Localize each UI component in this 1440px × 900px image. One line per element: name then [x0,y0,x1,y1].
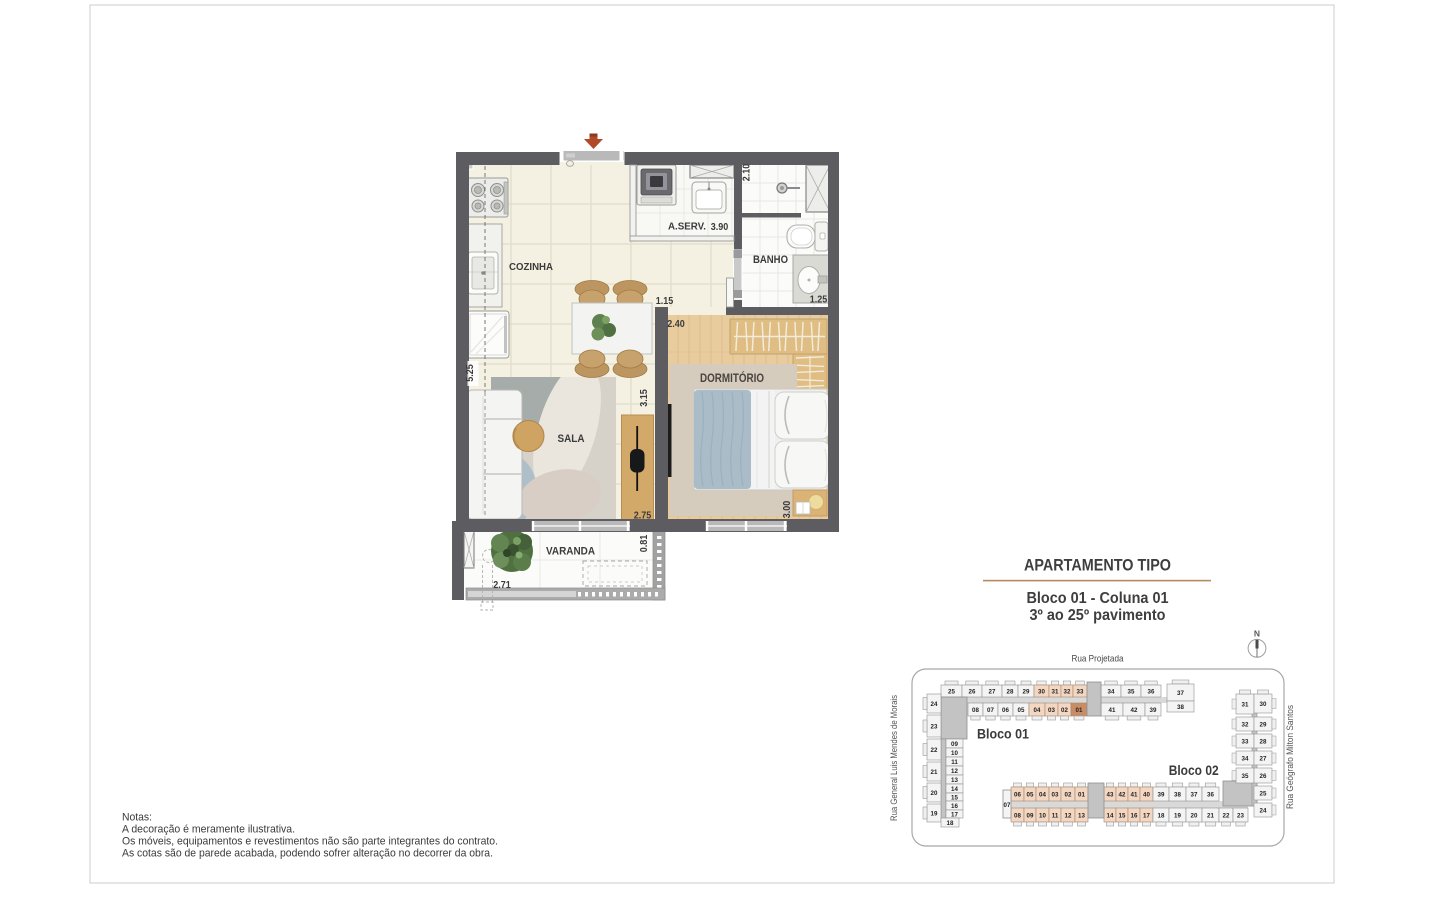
svg-text:3.90: 3.90 [711,222,729,233]
svg-text:2.10: 2.10 [742,163,753,181]
svg-text:06: 06 [1002,707,1009,714]
svg-text:11: 11 [951,759,958,766]
svg-text:42: 42 [1119,791,1126,798]
svg-text:03: 03 [1052,791,1059,798]
svg-text:19: 19 [1174,812,1181,819]
svg-text:20: 20 [931,790,938,797]
svg-text:12: 12 [1065,812,1072,819]
svg-text:25: 25 [1260,790,1267,797]
svg-text:APARTAMENTO TIPO: APARTAMENTO TIPO [1024,556,1171,575]
svg-text:26: 26 [969,688,976,695]
svg-text:24: 24 [931,701,938,708]
svg-text:28: 28 [1260,738,1267,745]
svg-text:2.75: 2.75 [634,511,652,522]
svg-text:Rua General Luis Mendes de Mor: Rua General Luis Mendes de Morais [889,695,900,821]
svg-text:39: 39 [1158,791,1165,798]
svg-text:37: 37 [1191,791,1198,798]
svg-text:29: 29 [1260,721,1267,728]
svg-text:43: 43 [1107,791,1114,798]
svg-text:2.71: 2.71 [493,580,511,591]
svg-text:04: 04 [1039,791,1046,798]
svg-text:3º ao 25º pavimento: 3º ao 25º pavimento [1030,607,1166,624]
svg-text:05: 05 [1018,707,1025,714]
svg-text:N: N [1254,629,1260,639]
svg-text:41: 41 [1131,791,1138,798]
svg-text:Bloco 01: Bloco 01 [977,727,1029,742]
svg-text:29: 29 [1023,688,1030,695]
svg-text:28: 28 [1007,688,1014,695]
svg-text:Bloco 02: Bloco 02 [1169,763,1219,778]
svg-text:09: 09 [951,741,958,748]
svg-text:22: 22 [931,747,938,754]
svg-text:05: 05 [1027,791,1034,798]
svg-text:18: 18 [947,820,954,827]
svg-text:07: 07 [1004,802,1011,809]
svg-text:0.81: 0.81 [639,534,650,552]
svg-text:38: 38 [1174,791,1181,798]
svg-text:17: 17 [951,811,958,818]
svg-text:27: 27 [989,688,996,695]
svg-text:30: 30 [1260,701,1267,708]
svg-text:Rua Geógrafo Milton Santos: Rua Geógrafo Milton Santos [1285,705,1296,809]
svg-text:Os móveis, equipamentos e reve: Os móveis, equipamentos e revestimentos … [122,836,498,848]
svg-text:24: 24 [1260,807,1267,814]
svg-text:32: 32 [1064,688,1071,695]
svg-text:COZINHA: COZINHA [509,261,553,273]
svg-text:01: 01 [1078,791,1085,798]
svg-text:BANHO: BANHO [753,254,788,266]
svg-text:15: 15 [951,794,958,801]
svg-text:14: 14 [951,786,958,793]
svg-text:13: 13 [1078,812,1085,819]
svg-text:SALA: SALA [558,433,585,445]
svg-text:A.SERV.: A.SERV. [668,221,706,233]
svg-text:09: 09 [1027,812,1034,819]
svg-text:18: 18 [1158,812,1165,819]
svg-text:35: 35 [1128,688,1135,695]
svg-text:21: 21 [931,769,938,776]
svg-text:27: 27 [1260,755,1267,762]
svg-text:As cotas são de parede acabada: As cotas são de parede acabada, podendo … [122,847,493,859]
svg-text:10: 10 [1039,812,1046,819]
svg-text:23: 23 [1237,812,1244,819]
svg-text:13: 13 [951,777,958,784]
svg-text:2.40: 2.40 [667,319,685,330]
svg-text:08: 08 [972,707,979,714]
svg-text:1.25: 1.25 [810,295,828,306]
svg-text:5.25: 5.25 [465,364,476,382]
svg-text:34: 34 [1242,755,1249,762]
svg-text:33: 33 [1077,688,1084,695]
svg-text:41: 41 [1109,707,1116,714]
svg-text:Rua Projetada: Rua Projetada [1072,654,1125,665]
svg-text:21: 21 [1207,812,1214,819]
svg-text:04: 04 [1034,707,1041,714]
svg-text:30: 30 [1038,688,1045,695]
svg-text:20: 20 [1191,812,1198,819]
svg-text:02: 02 [1061,707,1068,714]
svg-text:VARANDA: VARANDA [546,546,595,558]
svg-text:3.00: 3.00 [782,500,793,518]
svg-text:36: 36 [1207,791,1214,798]
svg-text:08: 08 [1014,812,1021,819]
svg-text:Notas:: Notas: [122,812,152,824]
svg-text:31: 31 [1242,701,1249,708]
svg-text:22: 22 [1223,812,1230,819]
svg-text:17: 17 [1143,812,1150,819]
svg-text:15: 15 [1119,812,1126,819]
svg-text:19: 19 [931,810,938,817]
svg-text:38: 38 [1177,704,1184,711]
svg-text:39: 39 [1150,707,1157,714]
svg-text:10: 10 [951,750,958,757]
svg-text:26: 26 [1260,773,1267,780]
svg-text:37: 37 [1177,690,1184,697]
svg-text:42: 42 [1131,707,1138,714]
svg-text:40: 40 [1143,791,1150,798]
svg-text:25: 25 [948,688,955,695]
svg-text:Bloco 01 - Coluna 01: Bloco 01 - Coluna 01 [1027,590,1169,607]
svg-text:01: 01 [1076,707,1083,714]
svg-text:35: 35 [1242,773,1249,780]
svg-text:3.15: 3.15 [639,389,650,407]
svg-text:23: 23 [931,723,938,730]
svg-text:06: 06 [1014,791,1021,798]
svg-text:A decoração é meramente ilustr: A decoração é meramente ilustrativa. [122,824,295,836]
svg-text:32: 32 [1242,721,1249,728]
svg-text:36: 36 [1148,688,1155,695]
svg-text:02: 02 [1065,791,1072,798]
svg-text:33: 33 [1242,738,1249,745]
svg-text:07: 07 [987,707,994,714]
svg-text:12: 12 [951,768,958,775]
svg-text:1.15: 1.15 [656,296,674,307]
svg-text:31: 31 [1052,688,1059,695]
svg-text:03: 03 [1048,707,1055,714]
svg-text:14: 14 [1107,812,1114,819]
svg-text:16: 16 [951,803,958,810]
svg-text:DORMITÓRIO: DORMITÓRIO [700,372,764,385]
svg-text:11: 11 [1052,812,1059,819]
svg-text:34: 34 [1108,688,1115,695]
svg-text:16: 16 [1131,812,1138,819]
